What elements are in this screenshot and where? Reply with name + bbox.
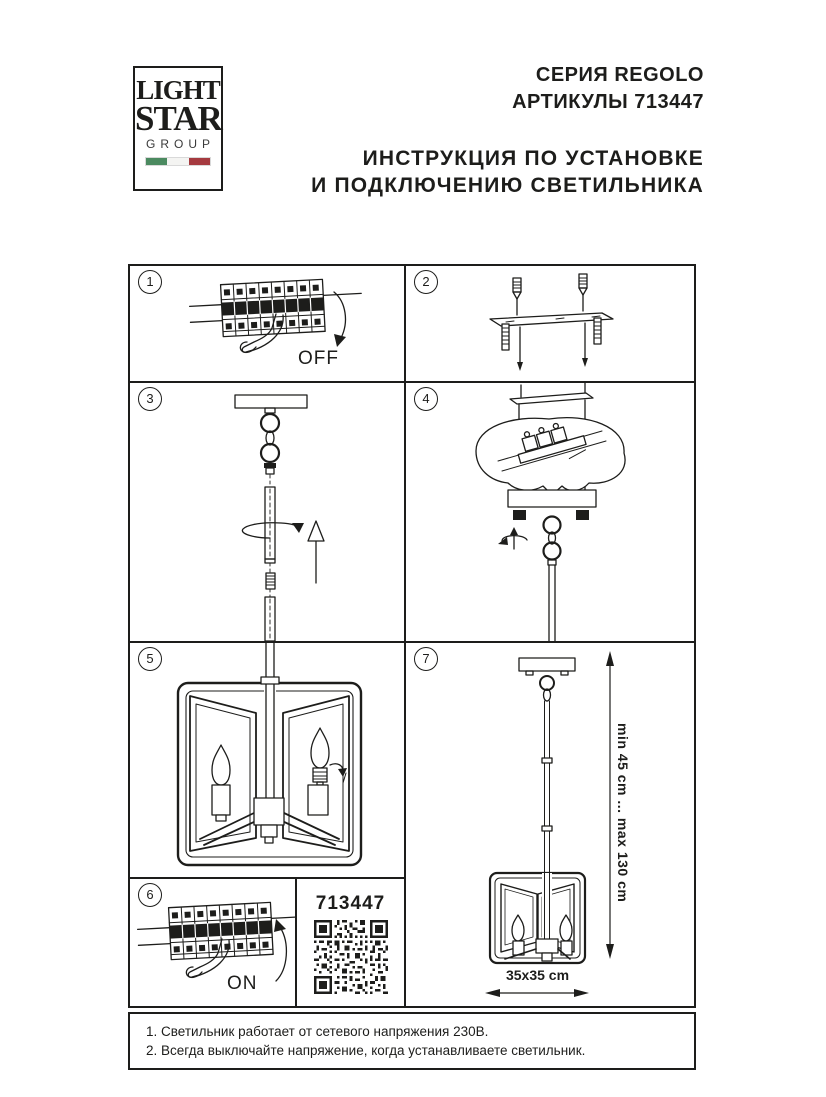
instruction-title: ИНСТРУКЦИЯ ПО УСТАНОВКЕ И ПОДКЛЮЧЕНИЮ СВ…	[311, 145, 704, 199]
step-number: 7	[414, 647, 438, 671]
step-2-panel: 2	[406, 266, 694, 381]
rod-assembly-illustration	[130, 383, 404, 641]
note-switch-off: 2. Всегда выключайте напряжение, когда у…	[146, 1041, 678, 1060]
step-number: 1	[138, 270, 162, 294]
header: СЕРИЯ REGOLO АРТИКУЛЫ 713447 ИНСТРУКЦИЯ …	[311, 62, 704, 199]
flag-green-segment	[146, 158, 167, 165]
logo-word-star: STAR	[135, 103, 221, 134]
step-5-panel: 5	[130, 643, 404, 877]
height-range-dimension: min 45 cm ... max 130 cm	[612, 673, 634, 953]
instruction-line-1: ИНСТРУКЦИЯ ПО УСТАНОВКЕ	[311, 145, 704, 172]
series-title: СЕРИЯ REGOLO	[311, 62, 704, 89]
italian-flag-stripe	[145, 157, 211, 166]
logo-word-group: GROUP	[135, 137, 221, 151]
article-number-title: АРТИКУЛЫ 713447	[311, 89, 704, 116]
circuit-breaker-off-illustration	[130, 266, 404, 381]
step-6-panel: 6 ON	[130, 879, 295, 1006]
mounting-bracket-illustration	[406, 266, 694, 381]
qr-cell: 713447	[297, 879, 404, 1006]
step-4-panel: 4	[406, 383, 694, 641]
bulb-installation-illustration	[130, 643, 404, 877]
flag-red-segment	[189, 158, 210, 165]
steps-grid: 1 OFF	[128, 264, 696, 1008]
instruction-line-2: И ПОДКЛЮЧЕНИЮ СВЕТИЛЬНИКА	[311, 172, 704, 199]
flag-white-segment	[167, 158, 188, 165]
wiring-canopy-illustration	[406, 383, 694, 641]
qr-code	[314, 920, 388, 994]
lightstar-logo: LIGHT STAR GROUP	[133, 66, 223, 191]
instruction-sheet: LIGHT STAR GROUP СЕРИЯ REGOLO АРТИКУЛЫ 7…	[0, 0, 826, 1097]
width-dimension: 35x35 cm	[490, 967, 585, 983]
step-number: 3	[138, 387, 162, 411]
step-number: 5	[138, 647, 162, 671]
breaker-on-label: ON	[227, 973, 258, 995]
step-7-panel: 7 min 45 cm ... max 130 cm 35x35 cm	[406, 643, 694, 1006]
step-number: 6	[138, 883, 162, 907]
step-1-panel: 1 OFF	[130, 266, 404, 381]
step-number: 2	[414, 270, 438, 294]
step-3-panel: 3	[130, 383, 404, 641]
step-number: 4	[414, 387, 438, 411]
safety-notes: 1. Светильник работает от сетевого напря…	[128, 1012, 696, 1070]
breaker-off-label: OFF	[298, 348, 339, 370]
article-number: 713447	[297, 893, 404, 915]
assembled-fixture-illustration	[406, 643, 694, 1006]
note-voltage: 1. Светильник работает от сетевого напря…	[146, 1022, 678, 1041]
